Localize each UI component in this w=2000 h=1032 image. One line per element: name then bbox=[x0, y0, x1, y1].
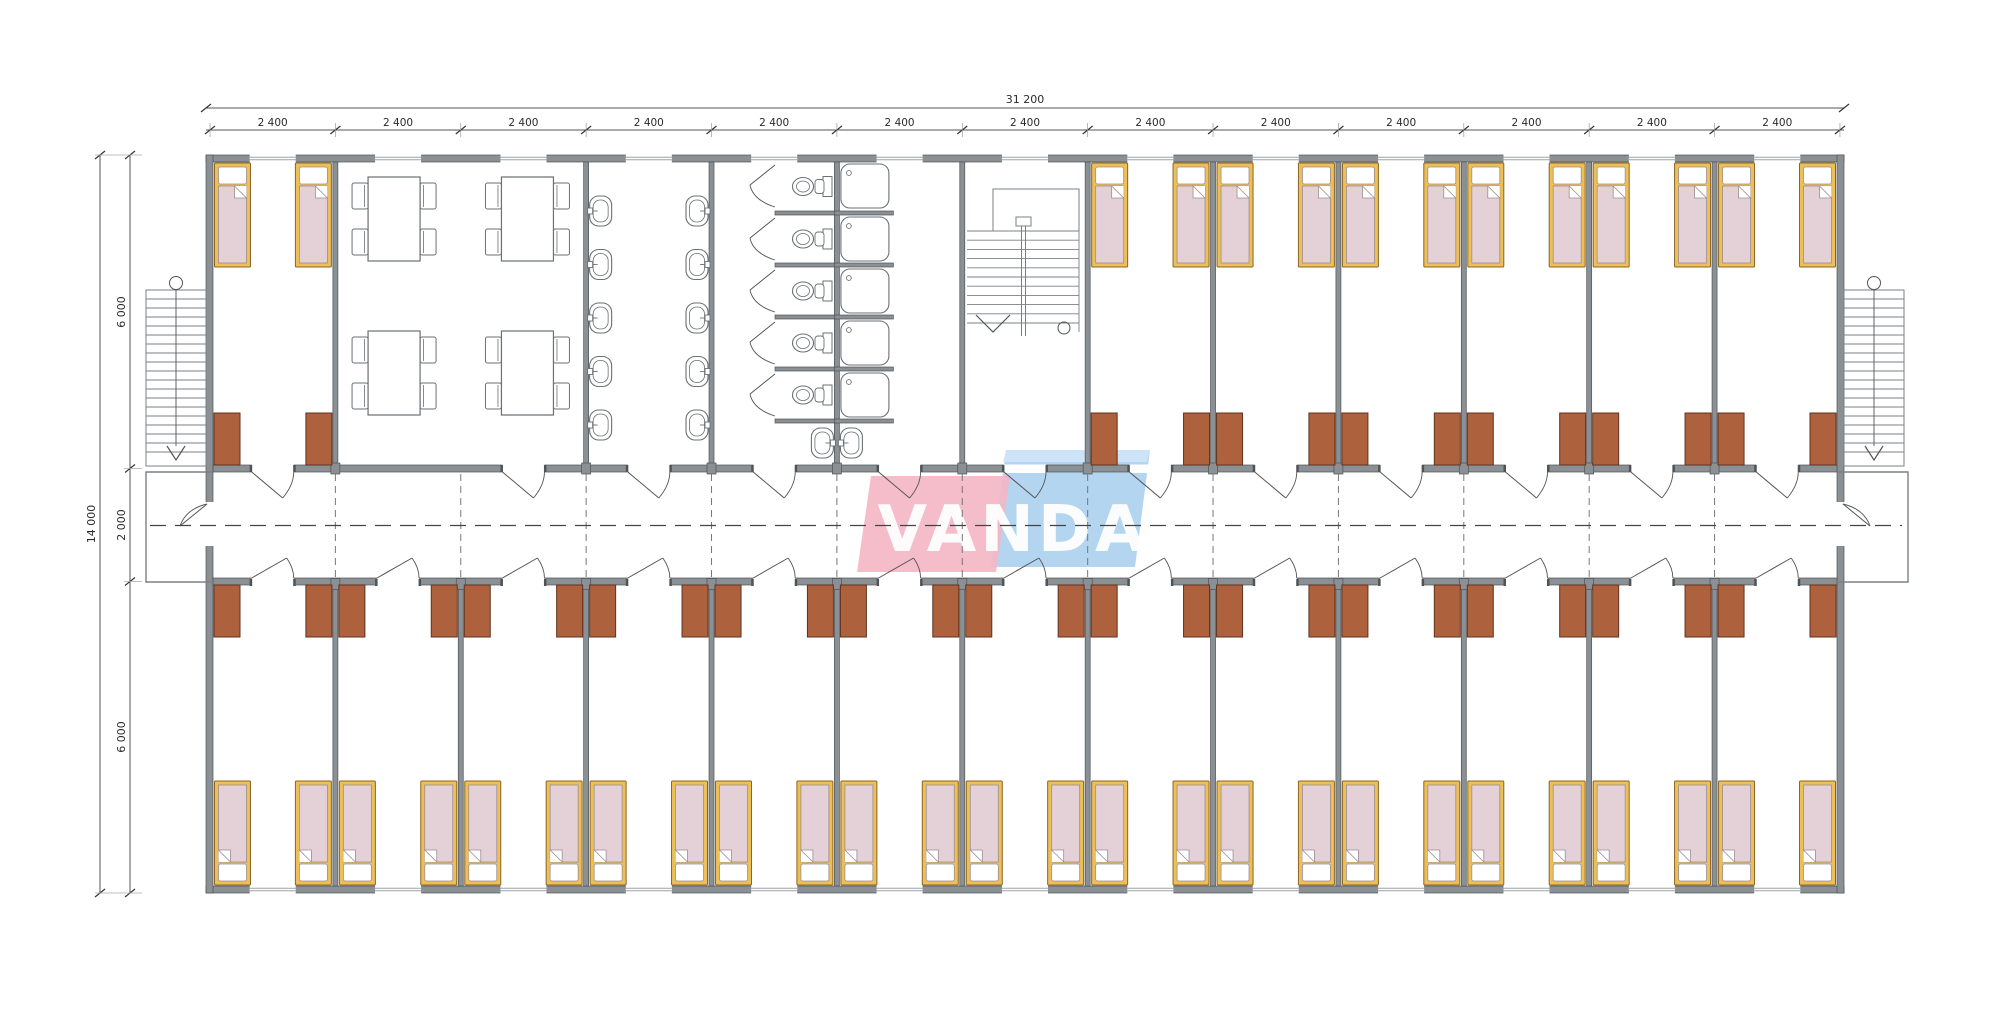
window bbox=[626, 155, 672, 163]
dimension-module: 2 400 bbox=[383, 117, 413, 129]
door bbox=[1378, 465, 1424, 499]
window bbox=[250, 886, 296, 894]
floor-plan: VANDA31 2002 4002 4002 4002 4002 4002 40… bbox=[0, 0, 2000, 1032]
washbasin bbox=[588, 196, 612, 226]
dimension-segment: 6 000 bbox=[115, 296, 128, 328]
window bbox=[250, 155, 296, 163]
bed bbox=[1173, 781, 1209, 885]
door bbox=[500, 558, 546, 586]
washbasin bbox=[686, 410, 710, 440]
floor-plan-canvas: VANDA31 2002 4002 4002 4002 4002 4002 40… bbox=[0, 0, 2000, 1032]
bed bbox=[1468, 781, 1504, 885]
window bbox=[1253, 886, 1299, 894]
chair bbox=[420, 383, 436, 409]
window bbox=[1002, 886, 1048, 894]
wardrobe bbox=[214, 585, 240, 637]
bed bbox=[1549, 163, 1585, 267]
window bbox=[751, 886, 797, 894]
wardrobe bbox=[715, 585, 741, 637]
wardrobe bbox=[339, 585, 365, 637]
door bbox=[1754, 558, 1800, 586]
bed bbox=[1342, 163, 1378, 267]
dimension-segment: 6 000 bbox=[115, 721, 128, 753]
bed bbox=[215, 163, 251, 267]
dimension-module: 2 400 bbox=[1010, 117, 1040, 129]
washbasin bbox=[838, 428, 862, 458]
wardrobe bbox=[431, 585, 457, 637]
wardrobe bbox=[1685, 413, 1711, 465]
window bbox=[1127, 155, 1173, 163]
chair bbox=[352, 383, 368, 409]
exterior-stair-left bbox=[146, 277, 213, 583]
door-corridor-end-right bbox=[1837, 502, 1871, 546]
chair bbox=[352, 229, 368, 255]
door bbox=[1503, 465, 1549, 499]
shower-stalls bbox=[834, 164, 893, 423]
window bbox=[1503, 886, 1549, 894]
door bbox=[1754, 465, 1800, 499]
bed bbox=[1593, 781, 1629, 885]
door bbox=[626, 465, 672, 499]
wardrobe bbox=[1434, 585, 1460, 637]
stall-door bbox=[750, 165, 775, 207]
bed bbox=[590, 781, 626, 885]
door bbox=[751, 558, 797, 586]
bed bbox=[1217, 163, 1253, 267]
door bbox=[751, 465, 797, 499]
window bbox=[877, 886, 923, 894]
shower-stall bbox=[841, 164, 889, 208]
wardrobe bbox=[840, 585, 866, 637]
wardrobe bbox=[1217, 585, 1243, 637]
window bbox=[1754, 886, 1800, 894]
wardrobe bbox=[682, 585, 708, 637]
window bbox=[1629, 155, 1675, 163]
wardrobe bbox=[1467, 585, 1493, 637]
wardrobe bbox=[1091, 585, 1117, 637]
bed bbox=[1424, 781, 1460, 885]
dimension-module: 2 400 bbox=[1637, 117, 1667, 129]
wardrobe bbox=[1309, 585, 1335, 637]
bed bbox=[1092, 163, 1128, 267]
door bbox=[250, 465, 296, 499]
bed bbox=[966, 781, 1002, 885]
dimension-module: 2 400 bbox=[1135, 117, 1165, 129]
chair bbox=[485, 183, 501, 209]
dimension-total-length: 31 200 bbox=[1006, 93, 1045, 106]
wardrobe bbox=[1091, 413, 1117, 465]
wardrobe bbox=[1184, 413, 1210, 465]
bed bbox=[1173, 163, 1209, 267]
dining-table bbox=[501, 177, 553, 261]
chair bbox=[352, 183, 368, 209]
chair bbox=[485, 383, 501, 409]
wardrobe bbox=[1309, 413, 1335, 465]
window bbox=[877, 155, 923, 163]
wardrobe bbox=[1467, 413, 1493, 465]
wardrobe bbox=[557, 585, 583, 637]
washbasin bbox=[686, 357, 710, 387]
wardrobe bbox=[1718, 413, 1744, 465]
window bbox=[1127, 886, 1173, 894]
bed bbox=[295, 163, 331, 267]
window bbox=[1002, 155, 1048, 163]
door bbox=[250, 558, 296, 586]
dimension-module: 2 400 bbox=[1261, 117, 1291, 129]
bed bbox=[716, 781, 752, 885]
door bbox=[1629, 465, 1675, 499]
central-staircase bbox=[967, 189, 1079, 336]
door bbox=[1253, 465, 1299, 499]
dimension-module: 2 400 bbox=[885, 117, 915, 129]
bed bbox=[1092, 781, 1128, 885]
wardrobe bbox=[1058, 585, 1084, 637]
window bbox=[375, 886, 421, 894]
bed bbox=[922, 781, 958, 885]
dimension-total-depth: 14 000 bbox=[85, 505, 98, 544]
stall-door bbox=[750, 322, 775, 364]
chair bbox=[553, 383, 569, 409]
dining-table bbox=[368, 331, 420, 415]
dining-table bbox=[501, 331, 553, 415]
door bbox=[1629, 558, 1675, 586]
wc-stalls bbox=[750, 165, 834, 423]
bed bbox=[465, 781, 501, 885]
bed bbox=[1468, 163, 1504, 267]
bed bbox=[1342, 781, 1378, 885]
chair bbox=[420, 229, 436, 255]
window bbox=[500, 886, 546, 894]
window bbox=[1503, 155, 1549, 163]
chair bbox=[553, 183, 569, 209]
bed bbox=[1549, 781, 1585, 885]
toilet bbox=[793, 229, 833, 249]
washbasin bbox=[686, 250, 710, 280]
dimension-module: 2 400 bbox=[1762, 117, 1792, 129]
door bbox=[1378, 558, 1424, 586]
bed bbox=[1298, 781, 1334, 885]
door bbox=[375, 558, 421, 586]
bed bbox=[215, 781, 251, 885]
chair bbox=[485, 337, 501, 363]
bed bbox=[1675, 163, 1711, 267]
wardrobe bbox=[1184, 585, 1210, 637]
chair bbox=[553, 337, 569, 363]
bed bbox=[1800, 163, 1836, 267]
dining-table bbox=[368, 177, 420, 261]
chair bbox=[352, 337, 368, 363]
door bbox=[500, 465, 546, 499]
chair bbox=[420, 183, 436, 209]
bed bbox=[295, 781, 331, 885]
wardrobe bbox=[1560, 585, 1586, 637]
wardrobe bbox=[1593, 585, 1619, 637]
wardrobe bbox=[1434, 413, 1460, 465]
bed bbox=[1800, 781, 1836, 885]
bed bbox=[1675, 781, 1711, 885]
bed bbox=[1048, 781, 1084, 885]
chair bbox=[420, 337, 436, 363]
toilet bbox=[793, 177, 833, 197]
stall-door bbox=[750, 270, 775, 312]
wardrobe bbox=[306, 585, 332, 637]
stall-door bbox=[750, 218, 775, 260]
logo-text: VANDA bbox=[878, 493, 1149, 567]
window bbox=[1253, 155, 1299, 163]
washbasin bbox=[686, 303, 710, 333]
wardrobe bbox=[590, 585, 616, 637]
exterior-stair-right bbox=[1837, 277, 1908, 583]
wardrobe bbox=[1217, 413, 1243, 465]
dimension-segment: 2 000 bbox=[115, 509, 128, 541]
bed bbox=[1719, 781, 1755, 885]
window bbox=[1754, 155, 1800, 163]
wardrobe bbox=[464, 585, 490, 637]
wardrobe bbox=[966, 585, 992, 637]
bed bbox=[1593, 163, 1629, 267]
dimension-module: 2 400 bbox=[508, 117, 538, 129]
stall-door bbox=[750, 374, 775, 416]
toilet bbox=[793, 333, 833, 353]
wardrobe bbox=[933, 585, 959, 637]
door bbox=[1253, 558, 1299, 586]
bed bbox=[672, 781, 708, 885]
stair-start-marker bbox=[1058, 322, 1070, 334]
window bbox=[1629, 886, 1675, 894]
wardrobe bbox=[1810, 585, 1836, 637]
shower-stall bbox=[841, 321, 889, 365]
dimension-module: 2 400 bbox=[634, 117, 664, 129]
toilet bbox=[793, 281, 833, 301]
washbasin bbox=[588, 410, 612, 440]
door bbox=[1503, 558, 1549, 586]
door-corridor-end-left bbox=[180, 502, 214, 546]
washbasin bbox=[811, 428, 835, 458]
window bbox=[375, 155, 421, 163]
bed bbox=[421, 781, 457, 885]
window bbox=[1378, 886, 1424, 894]
bed bbox=[1298, 163, 1334, 267]
bed bbox=[797, 781, 833, 885]
wardrobe bbox=[214, 413, 240, 465]
wardrobe bbox=[1342, 585, 1368, 637]
chair bbox=[485, 229, 501, 255]
dimension-module: 2 400 bbox=[258, 117, 288, 129]
dimension-module: 2 400 bbox=[759, 117, 789, 129]
window bbox=[1378, 155, 1424, 163]
shower-stall bbox=[841, 269, 889, 313]
toilet bbox=[793, 385, 833, 405]
window bbox=[626, 886, 672, 894]
washbasin bbox=[686, 196, 710, 226]
wardrobe bbox=[1810, 413, 1836, 465]
wardrobe bbox=[306, 413, 332, 465]
shower-stall bbox=[841, 373, 889, 417]
bed bbox=[1217, 781, 1253, 885]
washbasin bbox=[588, 357, 612, 387]
bed bbox=[339, 781, 375, 885]
window bbox=[751, 155, 797, 163]
bed bbox=[1424, 163, 1460, 267]
wardrobe bbox=[1718, 585, 1744, 637]
window bbox=[500, 155, 546, 163]
shower-stall bbox=[841, 217, 889, 261]
bed bbox=[841, 781, 877, 885]
dimension-module: 2 400 bbox=[1386, 117, 1416, 129]
washbasin bbox=[588, 303, 612, 333]
bed bbox=[546, 781, 582, 885]
bed bbox=[1719, 163, 1755, 267]
chair bbox=[553, 229, 569, 255]
door bbox=[626, 558, 672, 586]
wardrobe bbox=[1685, 585, 1711, 637]
dimension-module: 2 400 bbox=[1511, 117, 1541, 129]
wardrobe bbox=[807, 585, 833, 637]
wardrobe bbox=[1342, 413, 1368, 465]
logo-block-blue-highlight bbox=[1003, 450, 1150, 462]
dining-area bbox=[352, 177, 569, 415]
wardrobe bbox=[1560, 413, 1586, 465]
wardrobe bbox=[1593, 413, 1619, 465]
washbasin bbox=[588, 250, 612, 280]
